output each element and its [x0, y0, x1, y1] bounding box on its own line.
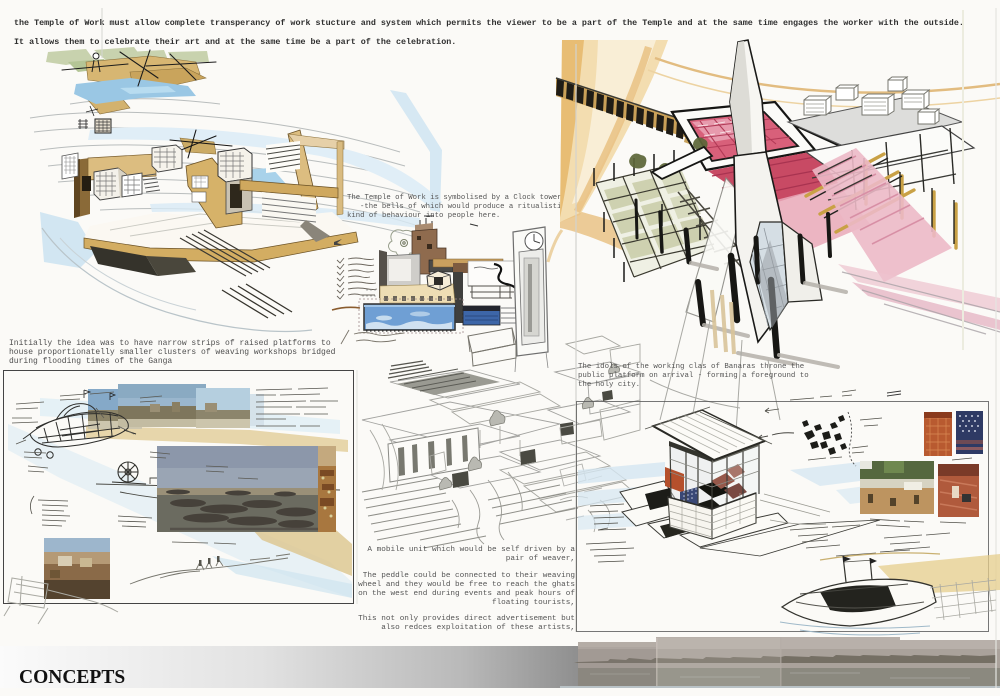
svg-text:Initially the idea was to have: Initially the idea was to have narrow st… [9, 339, 331, 348]
svg-text:It allows them to celebrate th: It allows them to celebrate their art an… [14, 37, 456, 47]
svg-text:on the west end during events: on the west end during events and peak h… [358, 590, 575, 598]
svg-text:The Temple of Work is symbolis: The Temple of Work is symbolised by a Cl… [347, 194, 566, 202]
svg-text:public platform on arrival - f: public platform on arrival - forming a f… [578, 372, 809, 380]
svg-text:kind of behaviour into people: kind of behaviour into people here. [347, 212, 500, 220]
svg-text:The peddle could be connected: The peddle could be connected to their w… [363, 572, 575, 580]
svg-text:the holy city.: the holy city. [578, 381, 640, 389]
svg-text:during flooding times of the G: during flooding times of the Ganga [9, 357, 172, 366]
svg-text:house proportionatelly smaller: house proportionatelly smaller clusters … [9, 348, 336, 357]
svg-text:CONCEPTS: CONCEPTS [19, 667, 125, 688]
svg-text:floating tourists,: floating tourists, [492, 599, 575, 607]
svg-text:also redces exploitation of th: also redces exploitation of these artist… [381, 624, 575, 632]
svg-text:A mobile unit which would be s: A mobile unit which would be self driven… [367, 546, 575, 554]
svg-text:The idols of the working clas: The idols of the working clas of Banaras… [578, 363, 804, 371]
svg-text:the Temple of Work must allow: the Temple of Work must allow complete t… [14, 18, 964, 28]
svg-text:wheel and they would be free t: wheel and they would be free to reach th… [358, 581, 575, 589]
svg-text:This not only provides direct: This not only provides direct advertisem… [358, 615, 575, 623]
svg-text:pair of weaver,: pair of weaver, [506, 555, 575, 563]
svg-text:-the bells of which would prod: -the bells of which would produce a ritu… [360, 203, 566, 211]
